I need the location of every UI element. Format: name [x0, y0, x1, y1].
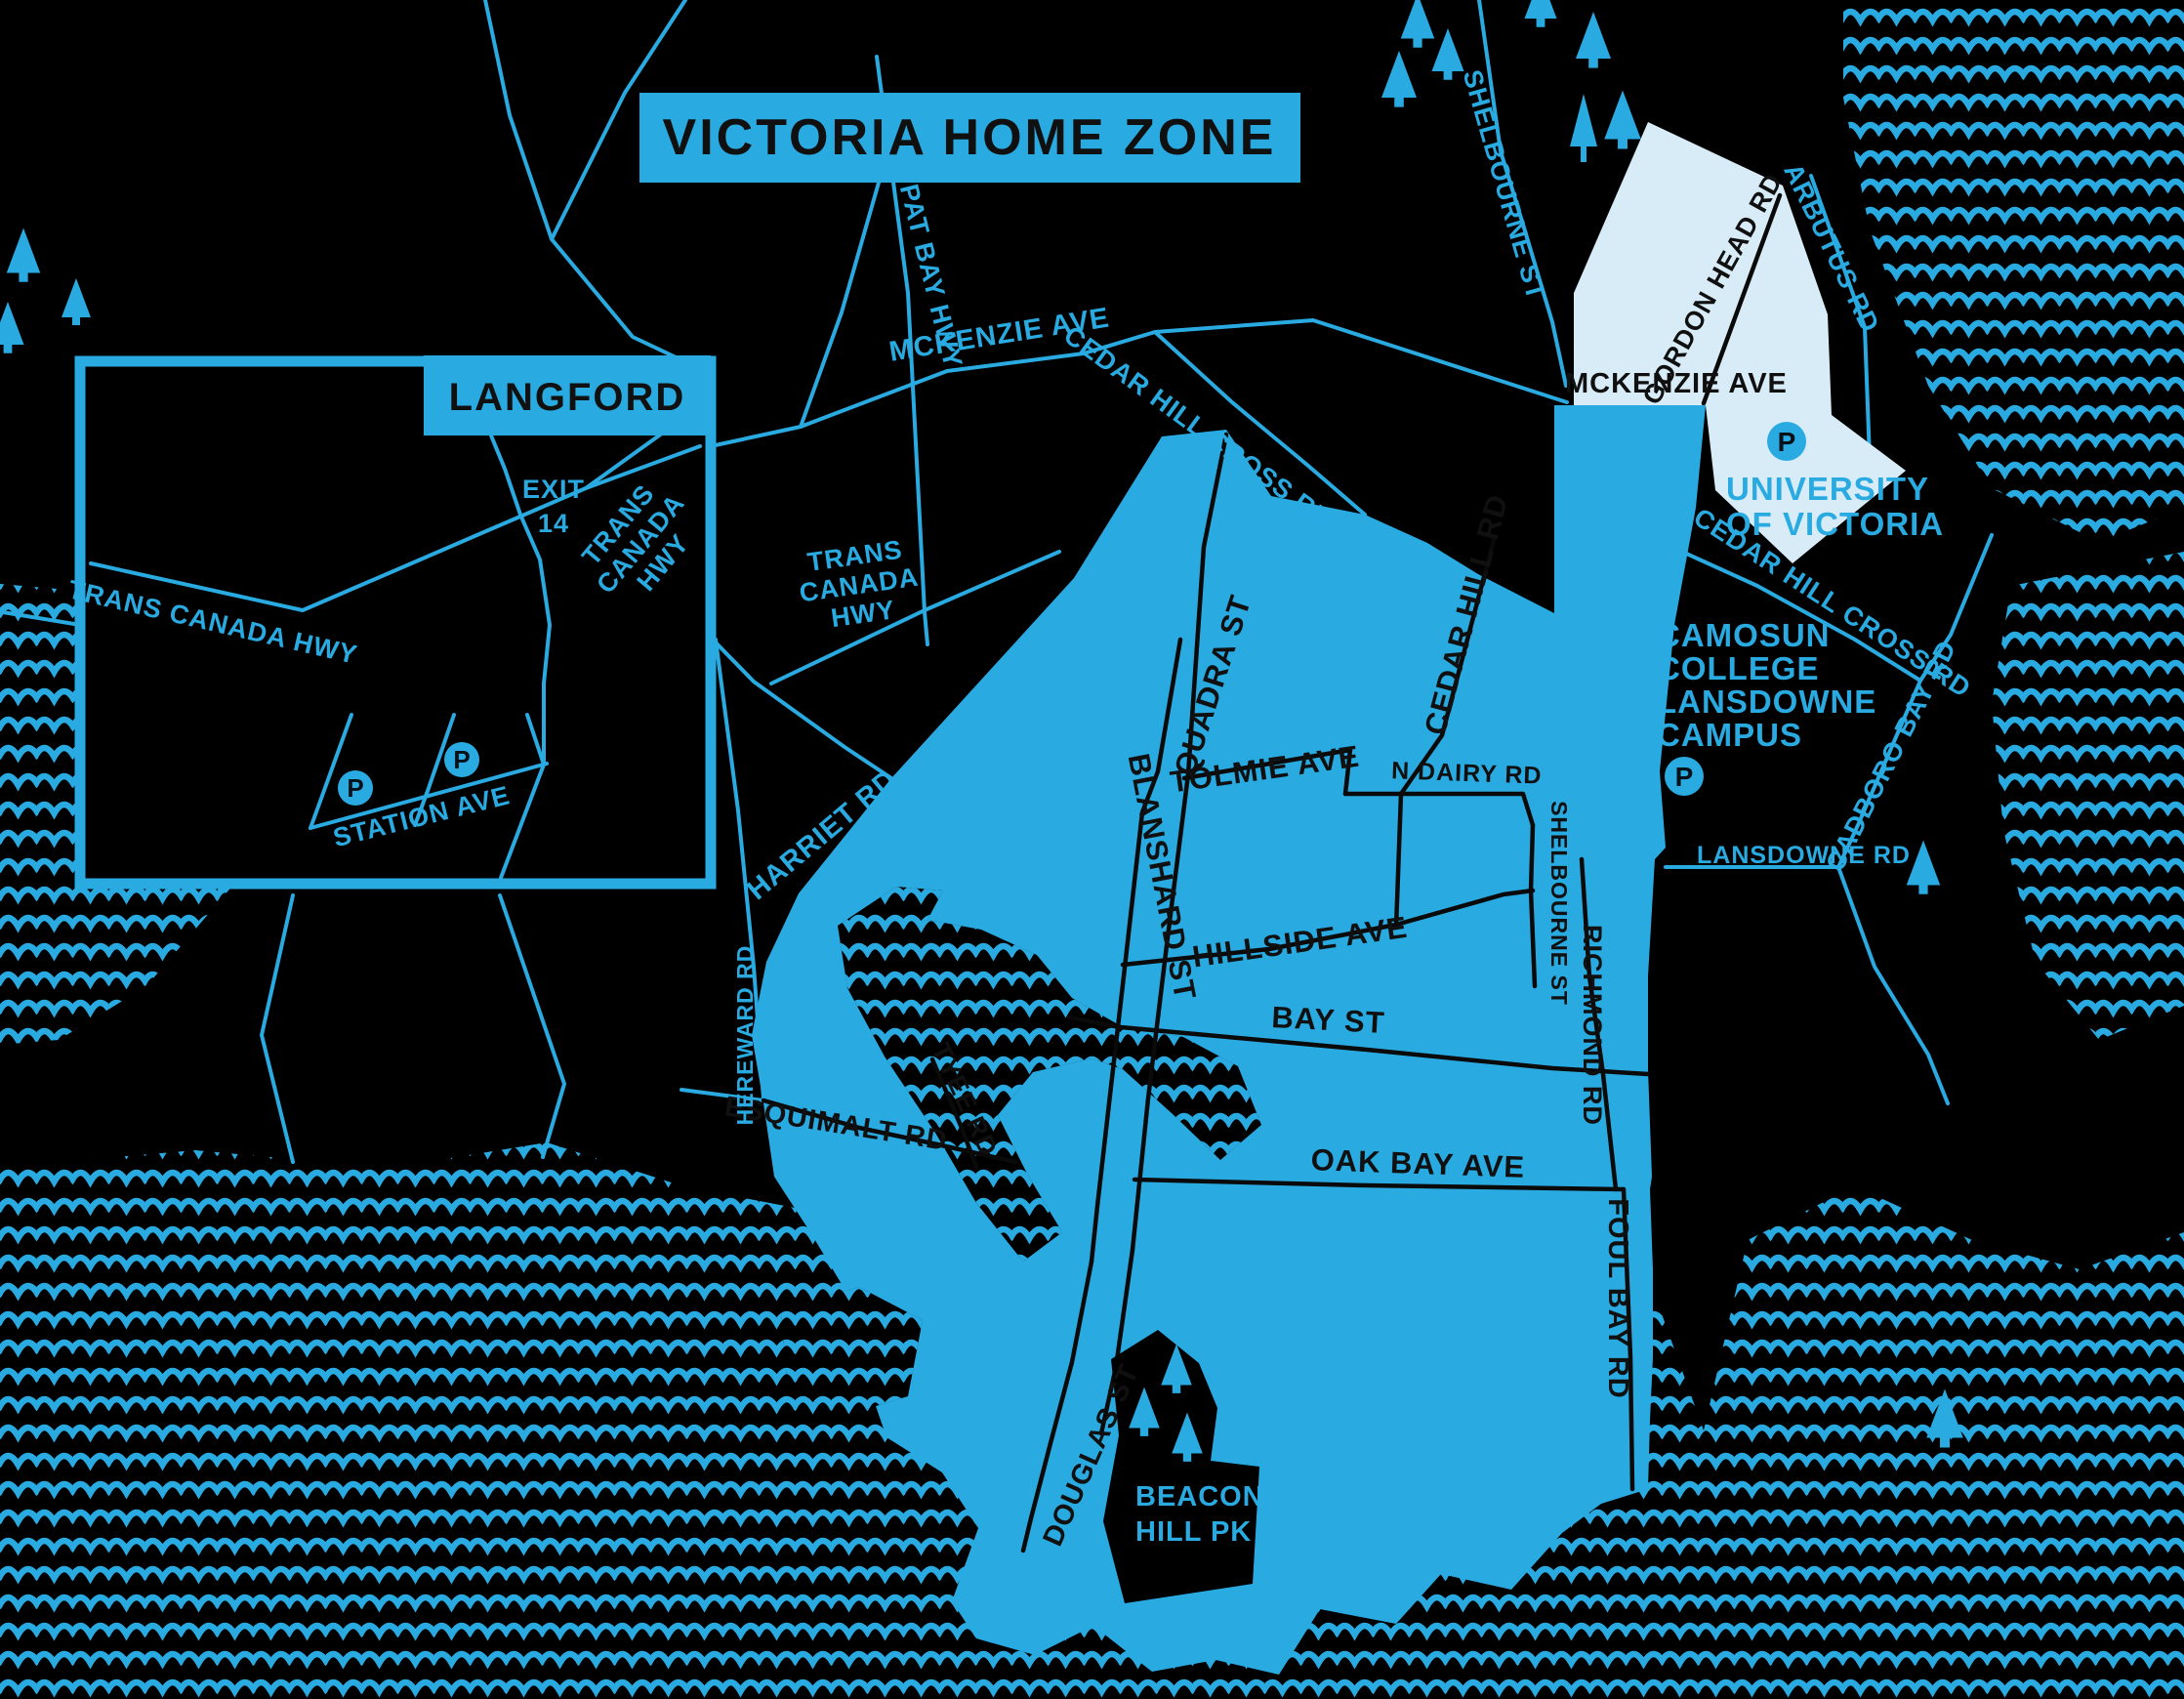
- svg-text:UNIVERSITY: UNIVERSITY: [1726, 471, 1929, 507]
- svg-text:P: P: [453, 745, 470, 774]
- svg-text:CAMOSUN: CAMOSUN: [1657, 617, 1831, 653]
- label-foul-bay: FOUL BAY RD: [1602, 1198, 1633, 1398]
- svg-text:P: P: [347, 773, 363, 803]
- label-beacon-hill-1: BEACON: [1135, 1481, 1264, 1513]
- svg-text:P: P: [1675, 762, 1694, 792]
- svg-text:OF VICTORIA: OF VICTORIA: [1726, 506, 1944, 542]
- label-hereward: HEREWARD RD: [732, 945, 758, 1126]
- victoria-home-zone-map: MCKENZIE AVE GORDON HEAD RD: [0, 0, 2184, 1699]
- svg-text:P: P: [1778, 427, 1796, 457]
- parking-marker: P: [1665, 757, 1704, 796]
- parking-marker: P: [444, 742, 479, 777]
- map-title-banner: VICTORIA HOME ZONE: [639, 93, 1300, 183]
- label-richmond: RICHMOND RD: [1578, 925, 1607, 1126]
- inset-title: LANGFORD: [449, 376, 686, 419]
- langford-inset: LANGFORD TRANS CANADA HWY EXIT 14 TRANS …: [65, 355, 713, 884]
- parking-marker: P: [338, 770, 373, 806]
- svg-text:CAMPUS: CAMPUS: [1657, 717, 1802, 753]
- svg-text:LANSDOWNE: LANSDOWNE: [1657, 684, 1876, 720]
- label-exit: EXIT: [522, 475, 585, 504]
- svg-text:COLLEGE: COLLEGE: [1657, 650, 1820, 686]
- page-title: VICTORIA HOME ZONE: [663, 109, 1277, 166]
- label-bay: BAY ST: [1271, 1000, 1386, 1040]
- label-lansdowne: LANSDOWNE RD: [1697, 842, 1911, 869]
- label-shelbourne-s: SHELBOURNE ST: [1546, 801, 1572, 1006]
- label-n-dairy: N DAIRY RD: [1391, 757, 1543, 789]
- label-exit-number: 14: [538, 509, 569, 538]
- parking-marker: P: [1767, 422, 1806, 461]
- label-beacon-hill-2: HILL PK: [1135, 1516, 1252, 1548]
